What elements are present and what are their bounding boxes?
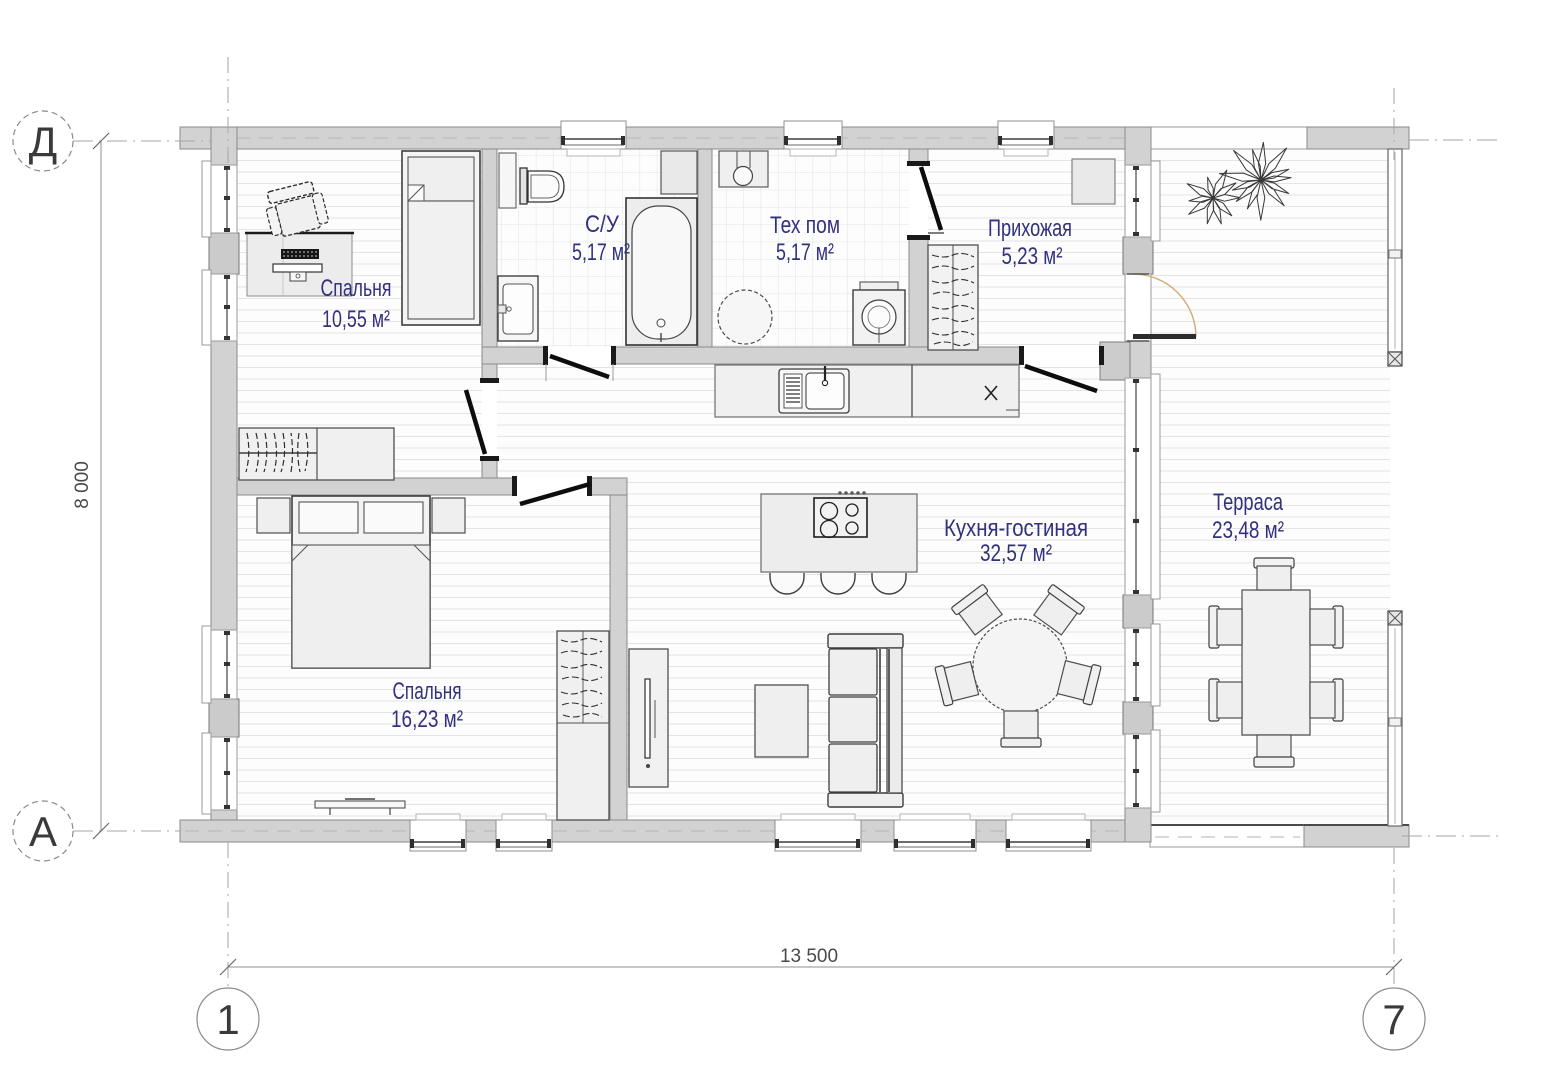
svg-text:13 500: 13 500: [780, 946, 838, 967]
svg-text:32,57 м²: 32,57 м²: [980, 540, 1052, 567]
svg-text:С/У: С/У: [585, 211, 620, 238]
svg-text:Спальня: Спальня: [393, 678, 462, 705]
svg-text:23,48 м²: 23,48 м²: [1212, 517, 1284, 544]
svg-text:1: 1: [216, 996, 239, 1043]
svg-text:5,23 м²: 5,23 м²: [1002, 243, 1063, 270]
svg-text:А: А: [29, 808, 57, 855]
svg-text:Д: Д: [29, 118, 57, 165]
svg-text:Спальня: Спальня: [321, 275, 392, 302]
svg-text:Кухня-гостиная: Кухня-гостиная: [944, 515, 1088, 542]
svg-text:Тех пом: Тех пом: [770, 212, 840, 239]
svg-text:10,55 м²: 10,55 м²: [322, 306, 390, 333]
svg-text:16,23 м²: 16,23 м²: [391, 706, 463, 733]
svg-text:5,17 м²: 5,17 м²: [776, 239, 834, 266]
svg-text:7: 7: [1382, 996, 1405, 1043]
svg-text:8 000: 8 000: [72, 461, 93, 509]
svg-text:Прихожая: Прихожая: [988, 215, 1072, 242]
svg-text:Терраса: Терраса: [1213, 489, 1283, 516]
svg-text:5,17 м²: 5,17 м²: [572, 239, 630, 266]
